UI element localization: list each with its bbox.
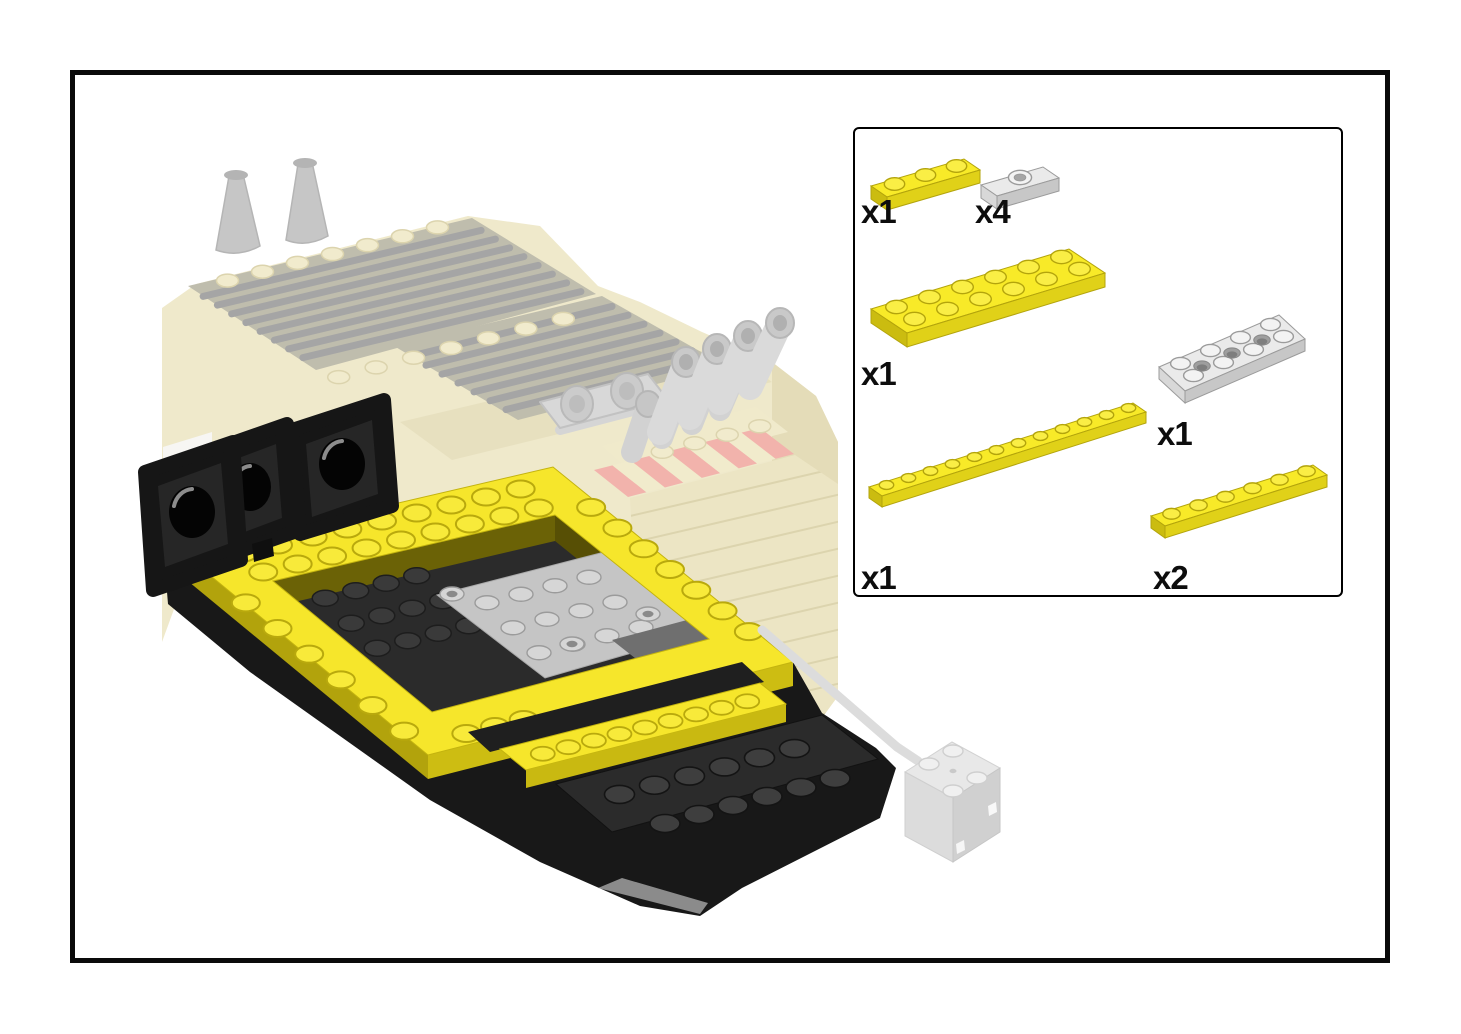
part-qty-label: x2: [1153, 561, 1188, 594]
part-icon-technic-plate-2x4-gray: [1151, 299, 1313, 411]
part-qty-label: x4: [975, 195, 1010, 228]
part-icon-plate-1x12-yellow: [861, 387, 1154, 515]
part-qty-label: x1: [1157, 417, 1192, 450]
part-qty-label: x1: [861, 357, 896, 390]
part-icon-plate-1x6-yellow: [1143, 449, 1335, 546]
part-qty-label: x1: [861, 195, 896, 228]
parts-callout-box: x1 x4 x1 x1 x1 x2: [853, 127, 1343, 597]
part-qty-label: x1: [861, 561, 896, 594]
instruction-page: x1 x4 x1 x1 x1 x2: [0, 0, 1461, 1034]
part-icon-plate-2x6-yellow: [863, 233, 1113, 355]
